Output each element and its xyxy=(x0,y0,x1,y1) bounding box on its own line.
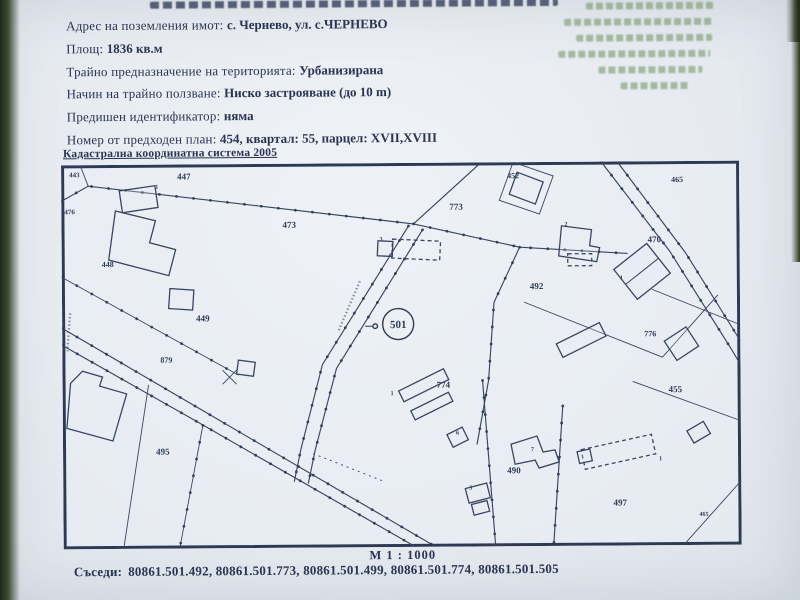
field-value: Урбанизирана xyxy=(299,62,383,78)
neighbors-line: Съседи:80861.501.492, 80861.501.773, 808… xyxy=(74,561,559,580)
field-label: Начин на трайно ползване: xyxy=(67,86,225,102)
field-label: Адрес на поземления имот: xyxy=(66,17,227,33)
parcel-number-label: 447 xyxy=(177,171,191,181)
parcel-number-label: 774 xyxy=(437,380,451,390)
photographed-cadastral-document: Адрес на поземления имот: с. Чернево, ул… xyxy=(0,0,800,600)
parcel-number-label: 465 xyxy=(699,512,708,518)
parcel-number-label: 6 xyxy=(456,431,459,437)
field-value: Ниско застрояване (до 10 m) xyxy=(224,84,391,100)
neighbors-values: 80861.501.492, 80861.501.773, 80861.501.… xyxy=(128,561,559,579)
clipped-text-line xyxy=(150,0,558,9)
parcel-number-label: 497 xyxy=(613,497,627,507)
field-label: Предишен идентификатор: xyxy=(67,108,224,124)
parcel-number-label: 470 xyxy=(648,234,662,244)
parcel-number-label: 7 xyxy=(531,447,534,453)
parcel-number-label: 1 xyxy=(659,456,662,462)
field-label: Трайно предназначение на територията: xyxy=(66,62,299,79)
photo-edge-left xyxy=(0,0,20,600)
parcel-number-label: 773 xyxy=(449,202,463,212)
cadastral-map: 501 443447476473448449879495452773465470… xyxy=(61,161,742,550)
property-fields: Адрес на поземления имот: с. Чернево, ул… xyxy=(66,11,687,152)
parcel-number-label: 465 xyxy=(671,175,683,184)
parcel-number-label: 473 xyxy=(282,220,296,230)
parcel-number-label: 443 xyxy=(69,171,80,179)
parcel-number-label: 879 xyxy=(160,356,172,365)
parcel-number-label: 2 xyxy=(564,222,567,228)
parcel-number-label: 3 xyxy=(469,485,472,491)
parcel-number-label: 776 xyxy=(644,329,656,338)
buildings xyxy=(65,171,711,518)
parcel-number-label: 1 xyxy=(620,275,623,281)
paper-sheet: Адрес на поземления имот: с. Чернево, ул… xyxy=(0,0,800,600)
parcel-number-label: 1 xyxy=(155,185,158,191)
field-value: с. Чернево, ул. с.ЧЕРНЕВО xyxy=(227,16,388,32)
subject-parcel-number: 501 xyxy=(390,319,407,331)
parcel-number-label: 492 xyxy=(530,281,544,291)
parcel-number-label: 448 xyxy=(102,260,114,269)
parcel-number-label: 449 xyxy=(196,313,210,323)
parcel-number-label: 455 xyxy=(669,384,683,394)
parcel-number-label: 490 xyxy=(507,465,521,475)
field-value: 454, квартал: 55, парцел: XVII,XVIII xyxy=(220,130,437,147)
neighbors-label: Съседи: xyxy=(74,564,122,579)
street-name-labels xyxy=(67,281,360,351)
field-label: Площ: xyxy=(66,41,107,56)
photo-edge-corner xyxy=(786,0,800,42)
field-value: няма xyxy=(224,108,254,123)
subject-parcel-marker: 501 xyxy=(365,308,414,339)
cadastral-map-svg: 501 443447476473448449879495452773465470… xyxy=(61,161,742,550)
parcel-number-label: 452 xyxy=(507,171,519,180)
parcel-number-label: 3 xyxy=(380,237,383,243)
field-value: 1836 кв.м xyxy=(107,40,163,55)
field-label: Номер от предходен план: xyxy=(67,131,220,147)
parcel-number-label: 495 xyxy=(156,447,170,457)
parcel-number-label: 476 xyxy=(64,208,75,216)
coordinate-system-note: Кадастрална координатна система 2005 xyxy=(63,147,277,160)
parcel-number-label: 1 xyxy=(391,391,394,397)
